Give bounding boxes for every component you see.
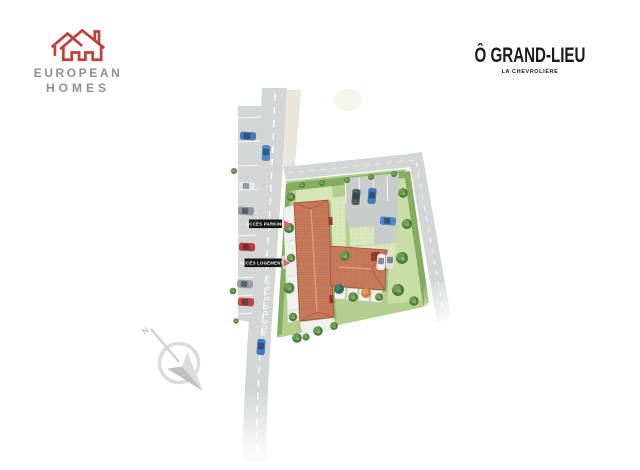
entrance-canopy [328, 217, 332, 225]
car [262, 145, 271, 161]
car [351, 189, 361, 206]
access-parking-label: ACCÈS PARKING [246, 220, 291, 229]
page: EUROPEAN HOMES Ô GRAND-LIEU LA CHEVROLIÈ… [0, 0, 640, 470]
compass: N [140, 325, 203, 391]
car [238, 206, 254, 215]
road-fade [228, 388, 308, 470]
car [376, 254, 385, 271]
faded-greenery [334, 89, 362, 111]
compass-north-label: N [140, 325, 151, 337]
car [380, 216, 397, 225]
car [385, 253, 394, 270]
car [237, 279, 253, 288]
teal-tree [334, 284, 344, 294]
right-road-fade [424, 282, 458, 328]
car [240, 131, 256, 140]
car [256, 339, 265, 356]
orange-tree [361, 288, 371, 298]
car [239, 181, 255, 190]
car [239, 242, 255, 251]
car [367, 188, 377, 205]
access-housing-text: ACCÈS LOGEMENTS [239, 261, 286, 266]
site-plan: ACCÈS PARKING ACCÈS LOGEMENTS RUE DU STA… [0, 0, 640, 470]
car [238, 297, 254, 306]
entrance-canopy [329, 295, 333, 303]
access-parking-text: ACCÈS PARKING [246, 222, 285, 227]
